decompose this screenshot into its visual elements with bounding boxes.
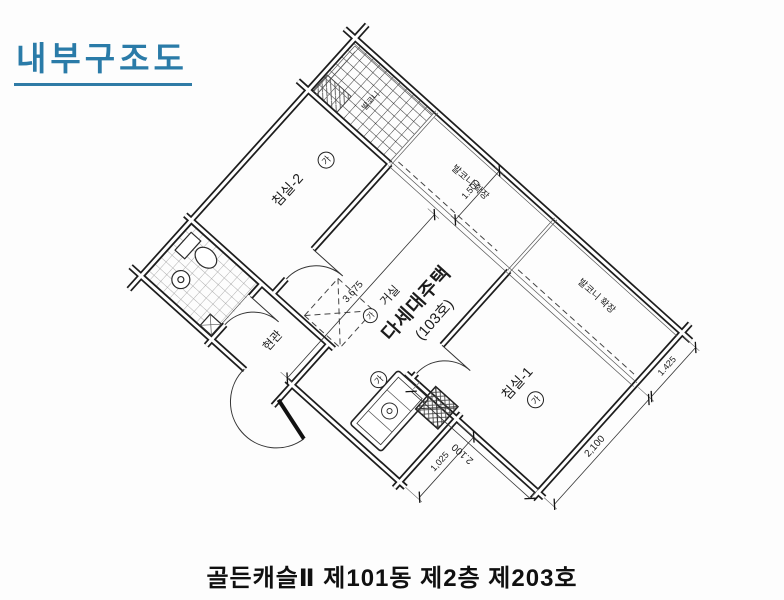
bedroom2-label: 침실-2 [269,170,307,209]
entrance-label: 현관 [260,328,285,354]
rotated-plan-group: 침실-2 가 발코니 현관 가 거실 다세대주택 (103호) 가 침실-1 가… [98,15,713,556]
dim-living-width: 3.675 [341,279,366,305]
living-room-label: 거실 [377,283,402,309]
dimension-lines [287,158,695,556]
balcony-extension-bedroom1-label: 발코니 확장 [575,276,618,316]
bedroom2-mark: 가 [315,149,338,172]
floorplan-svg: 침실-2 가 발코니 현관 가 거실 다세대주택 (103호) 가 침실-1 가… [0,0,784,556]
dim-bedroom1-left: 2.100 [450,441,476,466]
building-unit-caption: 골든캐슬Ⅱ 제101동 제2층 제203호 [0,558,784,593]
bedroom1-mark: 가 [524,388,547,411]
bedroom2-door-arc [286,249,342,305]
page-root: { "title": { "text": "내부구조도" }, "caption… [0,0,784,600]
bathroom-tile-floor [144,223,259,337]
dim-kitchen-bottom: 1,025 [428,450,451,473]
